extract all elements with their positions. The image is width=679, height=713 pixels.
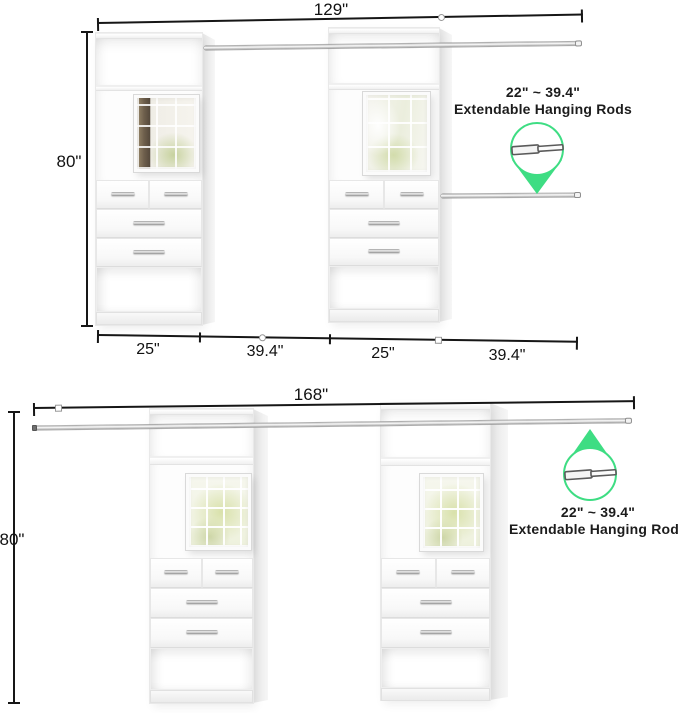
- drawer: [96, 238, 202, 267]
- drawer-handle: [186, 630, 218, 634]
- bottom-height-dimension-line: [13, 412, 15, 703]
- drawer-handle: [368, 249, 400, 253]
- drawer-row: [381, 558, 490, 588]
- dimension-tick: [633, 396, 635, 409]
- drawer: [150, 588, 253, 618]
- dimension-tick: [97, 18, 99, 31]
- segment-label-4: 39.4": [477, 347, 537, 365]
- wardrobe-tower-left: [96, 33, 215, 325]
- drawer: [329, 209, 439, 238]
- dimension-tick: [581, 10, 583, 23]
- segment-label-1: 25": [118, 341, 178, 359]
- tower-shelf-board: [150, 457, 253, 465]
- tower-side-panel: [490, 403, 508, 700]
- drawer-handle: [133, 250, 165, 254]
- mirror: [134, 95, 199, 172]
- drawer-row: [96, 180, 202, 209]
- tower-mirror-section: [150, 465, 253, 558]
- dimension-cap: [81, 325, 93, 327]
- rod-end-cap: [625, 418, 632, 424]
- drawer-handle: [400, 192, 424, 196]
- drawer: [96, 209, 202, 238]
- drawer: [150, 558, 202, 588]
- tower-mirror-section: [96, 91, 202, 180]
- mirror: [420, 474, 483, 551]
- dimension-joint-marker: [435, 337, 442, 344]
- drawer-handle: [186, 600, 218, 604]
- bottom-width-label: 168": [276, 385, 346, 405]
- drawer: [329, 238, 439, 266]
- callout-size-range: 22" ~ 39.4": [458, 84, 628, 100]
- bottom-height-label: 80": [0, 530, 28, 550]
- drawer: [381, 588, 490, 618]
- drawer: [436, 558, 491, 588]
- wardrobe-tower-right: [381, 403, 508, 700]
- drawer: [149, 180, 202, 209]
- drawer-handle: [396, 570, 420, 574]
- drawer-handle: [164, 192, 188, 196]
- tower-side-panel: [202, 33, 215, 325]
- drawer-handle: [215, 570, 239, 574]
- dimension-tick: [199, 332, 201, 342]
- tower-base: [150, 690, 253, 703]
- drawer-handle: [345, 192, 369, 196]
- segment-label-3: 25": [353, 345, 413, 363]
- drawer: [202, 558, 254, 588]
- tower-shelf-board: [381, 458, 490, 466]
- callout-description: Extendable Hanging Rods: [448, 101, 638, 117]
- tower-mirror-section: [329, 90, 439, 180]
- tower-side-panel: [439, 28, 452, 322]
- dimension-joint-marker: [55, 405, 62, 412]
- dimension-cap: [8, 702, 20, 704]
- drawer-handle: [164, 570, 188, 574]
- tower-front: [329, 28, 439, 322]
- tower-mirror-section: [381, 466, 490, 558]
- dimension-cap: [8, 411, 20, 413]
- tower-open-cubby: [381, 648, 490, 688]
- tower-open-cubby: [96, 267, 202, 312]
- rod-end-cap: [575, 40, 582, 46]
- extendable-rod-icon: [556, 425, 624, 507]
- hanging-rod: [33, 419, 631, 430]
- drawer: [384, 180, 439, 209]
- dimension-joint-marker: [259, 334, 266, 341]
- tower-front: [96, 33, 202, 325]
- mirror: [186, 474, 251, 550]
- tower-open-shelf: [150, 415, 253, 457]
- tower-front: [150, 409, 253, 703]
- callout-size-range: 22" ~ 39.4": [510, 504, 679, 520]
- drawer-handle: [368, 221, 400, 225]
- drawer-handle: [111, 192, 135, 196]
- drawer-handle: [133, 221, 165, 225]
- top-height-dimension-line: [86, 32, 88, 326]
- segment-label-2: 39.4": [235, 343, 295, 361]
- callout-description: Extendable Hanging Rods: [500, 521, 679, 537]
- wardrobe-tower-right: [329, 28, 452, 322]
- dimension-joint-marker: [438, 14, 445, 21]
- drawer-handle: [451, 570, 475, 574]
- dimension-tick: [329, 334, 331, 344]
- tower-open-cubby: [150, 648, 253, 690]
- mirror: [363, 92, 430, 175]
- tower-open-shelf: [329, 34, 439, 84]
- rod-end-cap: [32, 425, 37, 431]
- tower-open-shelf: [381, 410, 490, 458]
- drawer-row: [329, 180, 439, 209]
- drawer-handle: [420, 630, 452, 634]
- tower-base: [381, 688, 490, 701]
- tower-open-shelf: [96, 39, 202, 86]
- drawer: [381, 618, 490, 648]
- dimension-tick: [97, 330, 99, 343]
- dimension-tick: [576, 337, 578, 350]
- dimension-cap: [81, 31, 93, 33]
- drawer: [381, 558, 436, 588]
- tower-open-cubby: [329, 266, 439, 309]
- drawer: [96, 180, 149, 209]
- tower-base: [96, 312, 202, 325]
- drawer: [150, 618, 253, 648]
- drawer-handle: [420, 600, 452, 604]
- top-height-label: 80": [54, 152, 84, 172]
- extendable-rod-icon: [503, 118, 571, 198]
- dimension-tick: [33, 403, 35, 416]
- rod-end-cap: [574, 192, 581, 198]
- drawer: [329, 180, 384, 209]
- tower-base: [329, 309, 439, 322]
- tower-front: [381, 403, 490, 700]
- tower-side-panel: [253, 409, 268, 703]
- wardrobe-tower-left: [150, 409, 268, 703]
- top-width-label: 129": [296, 0, 366, 20]
- drawer-row: [150, 558, 253, 588]
